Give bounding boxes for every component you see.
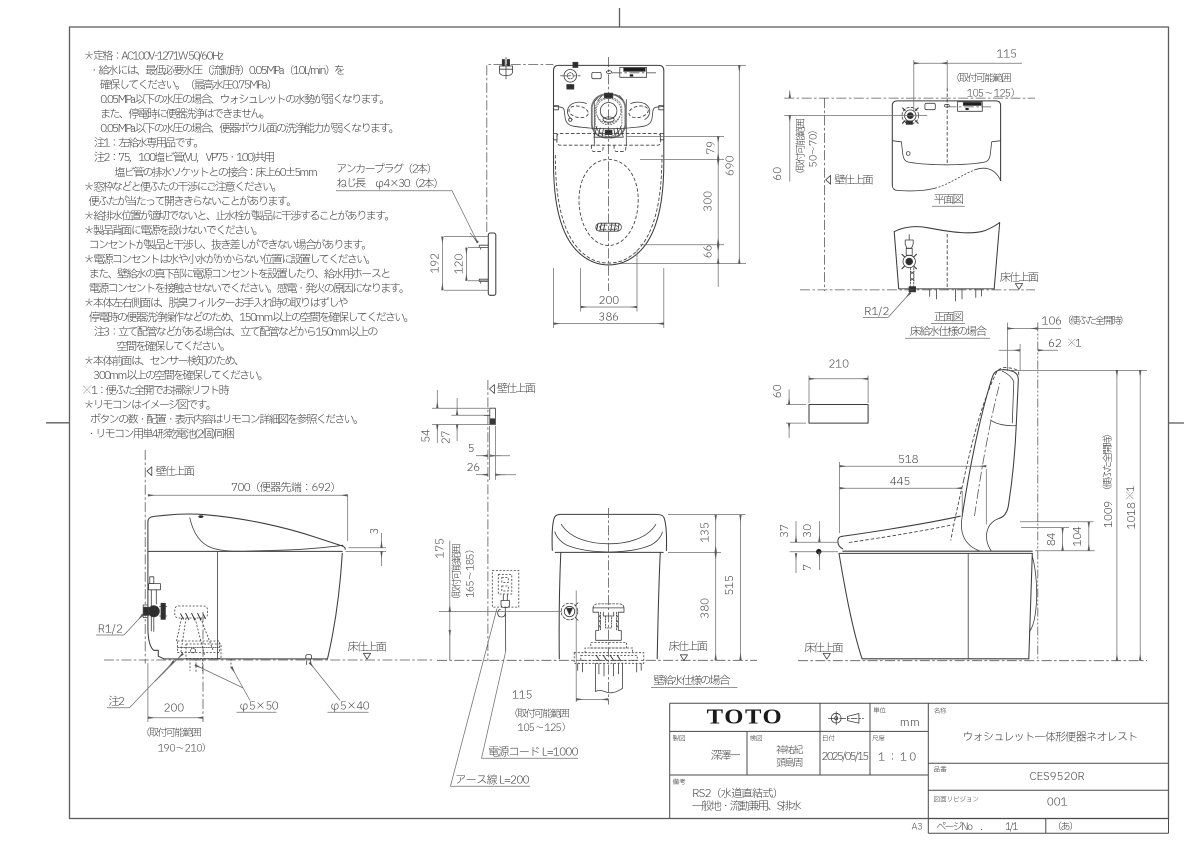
svg-text:製図: 製図 (673, 734, 686, 744)
svg-text:（取付可能範囲: （取付可能範囲 (141, 726, 202, 741)
svg-text:120: 120 (451, 254, 468, 274)
svg-text:（あ）: （あ） (1052, 820, 1078, 835)
svg-text:壁仕上面: 壁仕上面 (156, 463, 195, 480)
svg-text:名称: 名称 (934, 706, 948, 716)
svg-text:図面リビジョン: 図面リビジョン (934, 795, 980, 805)
svg-text:床給水仕様の場合: 床給水仕様の場合 (910, 323, 988, 340)
svg-text:135: 135 (696, 522, 713, 542)
svg-text:単位: 単位 (873, 706, 887, 716)
svg-text:700（便器先端：692）: 700（便器先端：692） (231, 479, 340, 496)
svg-text:37: 37 (776, 524, 793, 538)
svg-text:192: 192 (427, 253, 444, 273)
svg-text:一般地・流動兼用、S排水: 一般地・流動兼用、S排水 (692, 798, 802, 815)
svg-text:・リモコン用単4形乾電池(2個)同梱: ・リモコン用単4形乾電池(2個)同梱 (86, 425, 234, 442)
svg-text:ウォシュレット一体形便器ネオレスト: ウォシュレット一体形便器ネオレスト (962, 729, 1137, 746)
svg-text:品番: 品番 (934, 765, 948, 775)
svg-text:深澤一: 深澤一 (711, 747, 741, 764)
svg-text:50～70）: 50～70） (807, 125, 822, 167)
svg-text:210: 210 (828, 356, 848, 373)
svg-text:3: 3 (366, 528, 383, 535)
svg-text:200: 200 (164, 700, 184, 717)
svg-text:平面図: 平面図 (934, 191, 964, 208)
svg-text:壁仕上面: 壁仕上面 (834, 172, 873, 189)
svg-text:200: 200 (598, 292, 618, 309)
svg-text:1018: 1018 (1123, 502, 1140, 529)
svg-text:445: 445 (890, 473, 910, 490)
svg-text:115: 115 (512, 687, 532, 704)
svg-text:79: 79 (703, 141, 720, 154)
svg-text:386: 386 (598, 308, 618, 325)
svg-text:690: 690 (721, 156, 738, 176)
svg-text:106: 106 (1042, 313, 1062, 330)
svg-text:mm: mm (900, 714, 920, 731)
svg-text:壁仕上面: 壁仕上面 (497, 380, 536, 397)
svg-text:60: 60 (769, 167, 786, 181)
svg-text:001: 001 (1047, 794, 1068, 811)
svg-text:26: 26 (467, 459, 480, 476)
svg-text:ねじ長 φ4×30（2本）: ねじ長 φ4×30（2本） (337, 175, 443, 192)
svg-text:515: 515 (721, 575, 738, 595)
svg-text:備考: 備考 (673, 777, 686, 787)
svg-text:27: 27 (438, 431, 455, 445)
svg-text:54: 54 (417, 429, 434, 443)
svg-text:床仕上面: 床仕上面 (669, 638, 708, 655)
svg-text:105～125）: 105～125） (967, 87, 1021, 102)
svg-text:7: 7 (799, 564, 816, 571)
svg-text:30: 30 (799, 524, 816, 538)
svg-text:380: 380 (696, 598, 713, 618)
svg-text:165～185）: 165～185） (463, 544, 478, 598)
svg-text:※1: ※1 (1067, 337, 1082, 352)
svg-text:（便ふた全開時）: （便ふた全開時） (1101, 430, 1116, 496)
svg-text:66: 66 (700, 245, 717, 258)
svg-text:尺度: 尺度 (872, 734, 886, 744)
svg-text:（便ふた全開時）: （便ふた全開時） (1062, 314, 1128, 329)
svg-text:（取付可能範囲: （取付可能範囲 (951, 72, 1012, 87)
svg-text:1/1: 1/1 (1005, 820, 1018, 835)
svg-text:（取付可能範囲: （取付可能範囲 (509, 707, 570, 722)
svg-text:518: 518 (898, 451, 918, 468)
svg-text:1：10: 1：10 (878, 749, 918, 766)
svg-text:1009: 1009 (1100, 501, 1117, 528)
svg-text:TOTO: TOTO (707, 705, 784, 729)
svg-text:A3: A3 (912, 820, 924, 834)
svg-text:壁給水仕様の場合: 壁給水仕様の場合 (653, 672, 731, 689)
svg-text:※1: ※1 (1124, 486, 1139, 501)
svg-text:115: 115 (997, 46, 1017, 63)
svg-text:日付: 日付 (822, 734, 836, 744)
svg-text:2025/05/15: 2025/05/15 (822, 748, 869, 765)
svg-text:62: 62 (1048, 335, 1062, 352)
svg-text:頭島周: 頭島周 (776, 756, 803, 771)
svg-text:5: 5 (468, 440, 475, 457)
svg-text:ページNo .: ページNo . (936, 820, 982, 835)
svg-text:60: 60 (769, 385, 786, 399)
svg-text:CES9520R: CES9520R (1029, 768, 1085, 785)
svg-text:175: 175 (432, 538, 449, 558)
svg-text:300: 300 (700, 191, 717, 211)
svg-text:104: 104 (1069, 526, 1086, 546)
svg-text:190～210）: 190～210） (158, 742, 212, 757)
svg-text:検図: 検図 (749, 734, 763, 744)
svg-text:84: 84 (1043, 533, 1060, 547)
svg-text:105～125）: 105～125） (517, 721, 571, 736)
